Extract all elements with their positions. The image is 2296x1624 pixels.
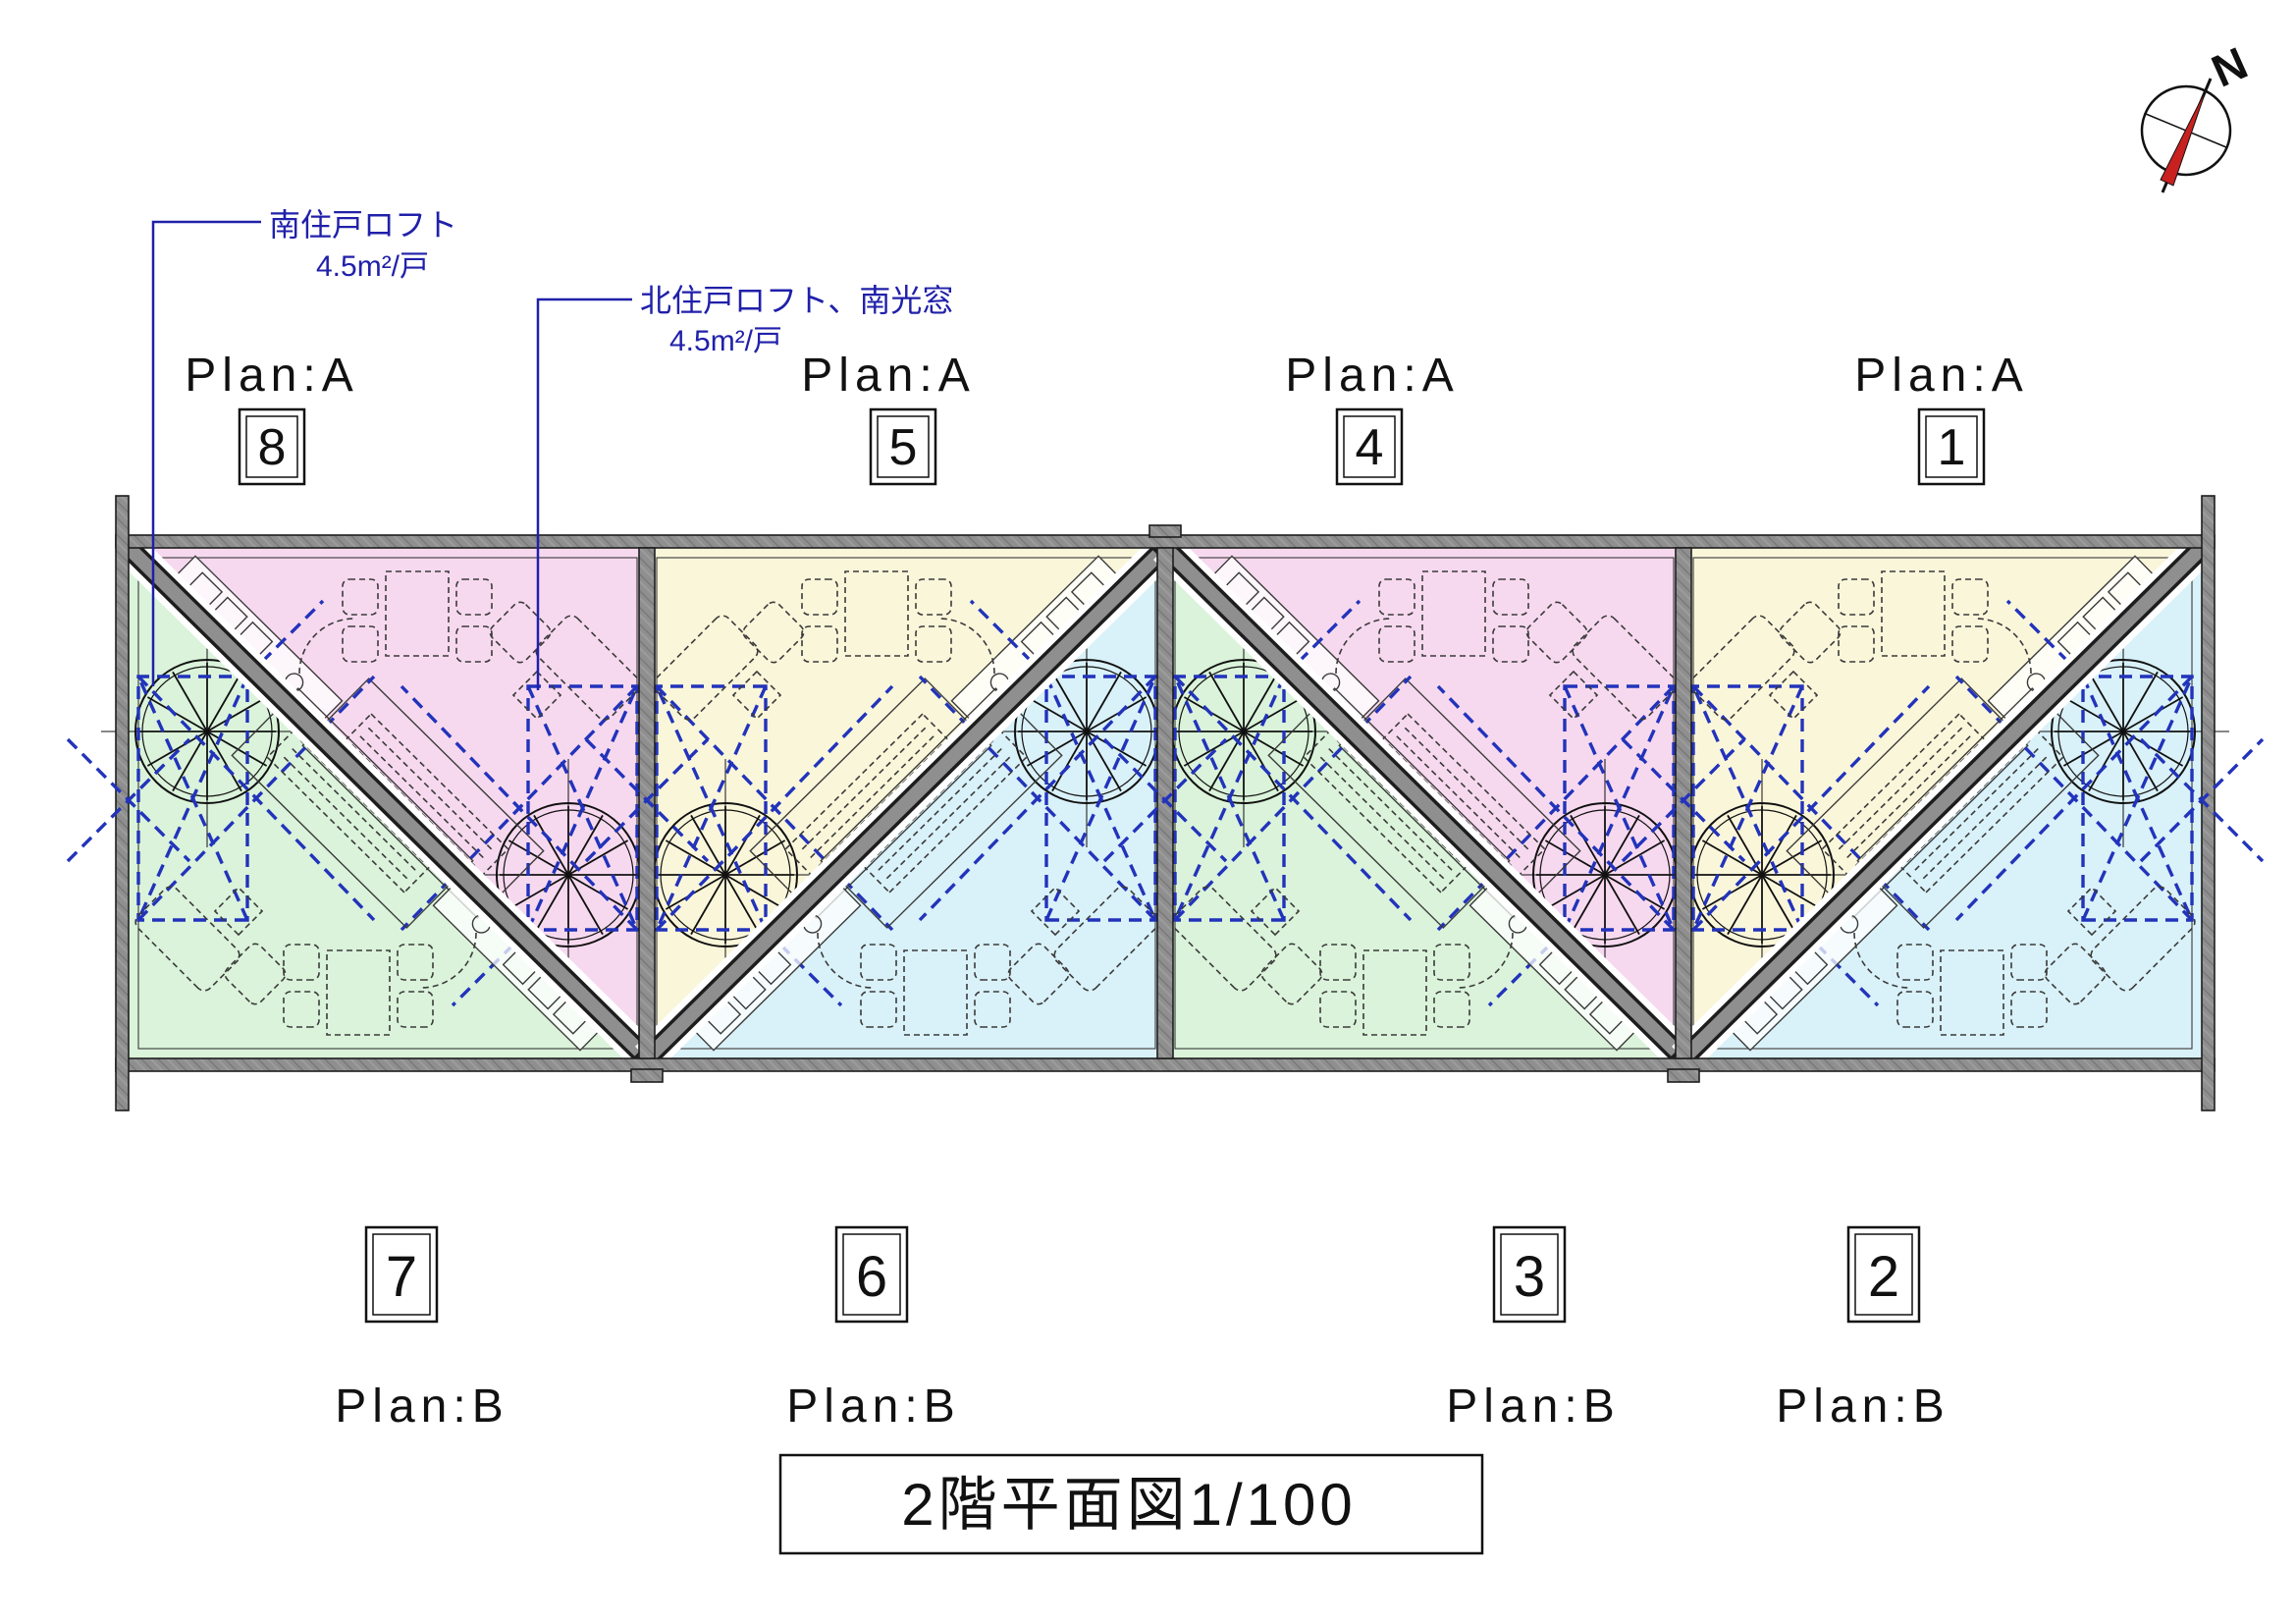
party-wall [1676,548,1691,1058]
wall-junction-post [1149,525,1181,537]
floor-plan-drawing: 南住戸ロフト 4.5m²/戸 北住戸ロフト、南光窓 4.5m²/戸 Plan:A… [0,0,2296,1624]
plan-type-label: Plan:A [185,350,358,402]
building-plan [68,496,2263,1110]
south-loft-area: 4.5m²/戸 [316,250,429,283]
unit-block [101,542,674,1064]
unit-label-8: Plan:A 8 [185,350,358,484]
unit-number: 7 [386,1245,417,1309]
unit-block [1656,542,2229,1064]
wall-junction-post [1668,1069,1699,1082]
unit-label-1: Plan:A 1 [1854,350,2028,484]
party-wall [639,548,655,1058]
compass: N [2142,37,2255,192]
unit-label-2: 2 Plan:B [1776,1227,1949,1433]
unit-label-5: Plan:A 5 [801,350,975,484]
drawing-title: 2階平面図1/100 [901,1472,1357,1538]
plan-type-label: Plan:A [801,350,975,402]
north-loft-area: 4.5m²/戸 [669,325,782,357]
unit-label-7: 7 Plan:B [335,1227,508,1433]
unit-label-4: Plan:A 4 [1285,350,1459,484]
title-block: 2階平面図1/100 [780,1455,1482,1553]
unit-label-6: 6 Plan:B [786,1227,960,1433]
unit-number: 6 [856,1245,887,1309]
plan-type-label: Plan:B [1776,1380,1949,1433]
south-wall [116,1058,2215,1071]
plan-type-label: Plan:B [1446,1380,1620,1433]
unit-number: 4 [1356,419,1384,476]
unit-block [619,542,1193,1064]
north-label: N [2204,37,2255,97]
north-loft-text: 北住戸ロフト、南光窓 [640,283,953,318]
wall-junction-post [631,1069,663,1082]
plan-type-label: Plan:B [335,1380,508,1433]
unit-block [1138,542,1711,1064]
unit-number: 5 [889,419,918,476]
south-loft-text: 南住戸ロフト [269,207,457,243]
plan-type-label: Plan:A [1854,350,2028,402]
plan-type-label: Plan:B [786,1380,960,1433]
unit-number: 3 [1514,1245,1545,1309]
unit-number: 1 [1938,419,1966,476]
party-wall [1157,548,1173,1058]
plan-type-label: Plan:A [1285,350,1459,402]
floor-plan-sheet: 南住戸ロフト 4.5m²/戸 北住戸ロフト、南光窓 4.5m²/戸 Plan:A… [0,0,2296,1624]
unit-number: 8 [258,419,287,476]
unit-number: 2 [1868,1245,1899,1309]
unit-label-3: 3 Plan:B [1446,1227,1620,1433]
